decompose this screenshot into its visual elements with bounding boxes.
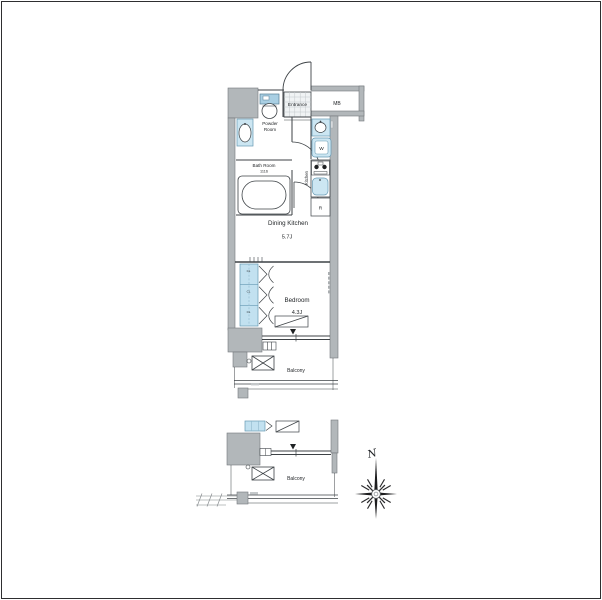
compass-hub-inner: [374, 492, 378, 496]
diagonal-box: [275, 316, 308, 327]
bathtub-icon: [238, 176, 290, 214]
balcony-parapet-block: [238, 388, 248, 398]
refrigerator-label: R: [319, 206, 323, 212]
neighbor-boundary-hatch: [196, 494, 237, 507]
kitchen-counter: [311, 160, 330, 197]
balcony-upper-label: Balcony: [287, 368, 305, 374]
bedroom-label: Bedroom: [284, 297, 309, 304]
door-swing-arrow-upper: [290, 329, 296, 335]
washer-label: W: [319, 146, 324, 152]
basin-icon: [312, 119, 333, 136]
washer-icon: W: [312, 138, 331, 157]
toilet-icon: [260, 94, 279, 119]
balcony-upper: Balcony: [234, 356, 338, 398]
entrance-door: [283, 62, 311, 90]
vanity-sink-icon: [237, 119, 253, 146]
drain-circle-lower: [246, 465, 250, 469]
stove-icon: [312, 161, 330, 175]
compass-north-label: N: [365, 447, 379, 461]
balcony-parapet-block-lower: [237, 492, 248, 504]
balcony-window: [262, 329, 330, 342]
equipment-box-upper: [252, 356, 274, 370]
kitchen-label: Kitchen: [304, 170, 309, 185]
powder-room-label-1: Powder: [262, 121, 278, 126]
right-wall-lower: [331, 420, 338, 453]
mb-label: MB: [333, 101, 341, 107]
dining-kitchen-size-label: 5.7J: [282, 235, 293, 241]
tiny-dimension-mark-upper: [251, 383, 259, 385]
kitchen-sink-icon: [313, 178, 329, 195]
bath-size-label: 1116: [260, 170, 268, 174]
wall-block-lower: [227, 433, 260, 465]
closet-label-2: CL: [247, 290, 251, 294]
closet: CL CL CL: [240, 264, 274, 326]
balcony-lower-label: Balcony: [287, 476, 305, 482]
bedroom-size-label: 4.3J: [292, 310, 303, 316]
balcony-window-lower: [260, 444, 331, 457]
tiny-dimension-mark-lower: [250, 492, 258, 494]
closet-label-3: CL: [247, 310, 251, 314]
floor-plan-page: Entrance MB: [0, 0, 602, 600]
door-swing-arrow-lower: [290, 444, 296, 450]
equipment-box-lower: [252, 467, 274, 480]
dining-kitchen-label: Dining Kitchen: [268, 220, 308, 227]
compass: N: [355, 447, 397, 519]
powder-room-label-2: Room: [264, 127, 276, 132]
lower-plan: Balcony: [196, 420, 338, 507]
closet-lower: [245, 421, 272, 431]
entrance-tile: Entrance: [284, 92, 311, 117]
compass-needle-vertical: [374, 458, 378, 519]
right-wall-stub-lower: [332, 453, 337, 473]
closet-folding-doors: [259, 266, 274, 324]
closet-label-1: CL: [247, 269, 251, 273]
entrance-label: Entrance: [288, 102, 308, 108]
floor-plan-drawing: Entrance MB: [0, 0, 602, 600]
balcony-step-box: [263, 342, 276, 350]
bath-room-label: Bath Room: [253, 163, 276, 168]
diagonal-box-lower: [276, 421, 299, 432]
